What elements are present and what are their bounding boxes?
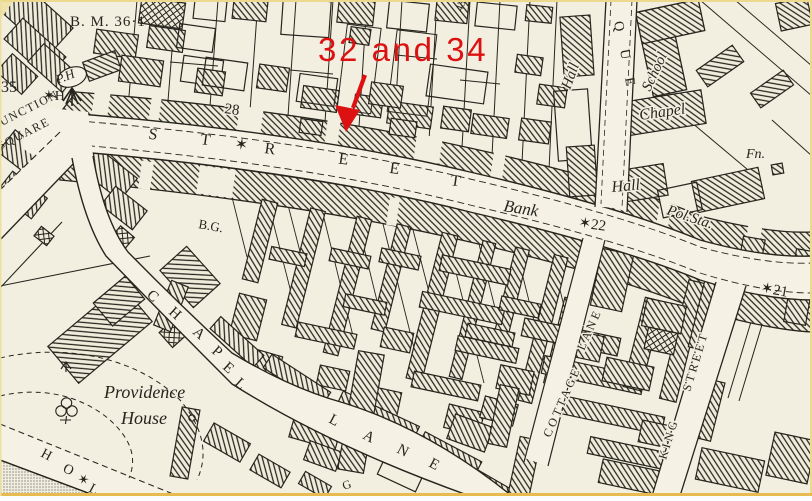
svg-text:House: House (120, 408, 167, 428)
svg-text:35: 35 (1, 79, 17, 96)
svg-text:Providence: Providence (103, 382, 185, 402)
svg-text:✶: ✶ (233, 136, 249, 155)
svg-text:Hall: Hall (610, 177, 641, 197)
svg-text:Fn.: Fn. (745, 147, 765, 162)
svg-text:B. M. 36·1: B. M. 36·1 (70, 14, 146, 30)
svg-text:32 and 34: 32 and 34 (318, 31, 488, 68)
svg-text:28: 28 (223, 101, 240, 119)
